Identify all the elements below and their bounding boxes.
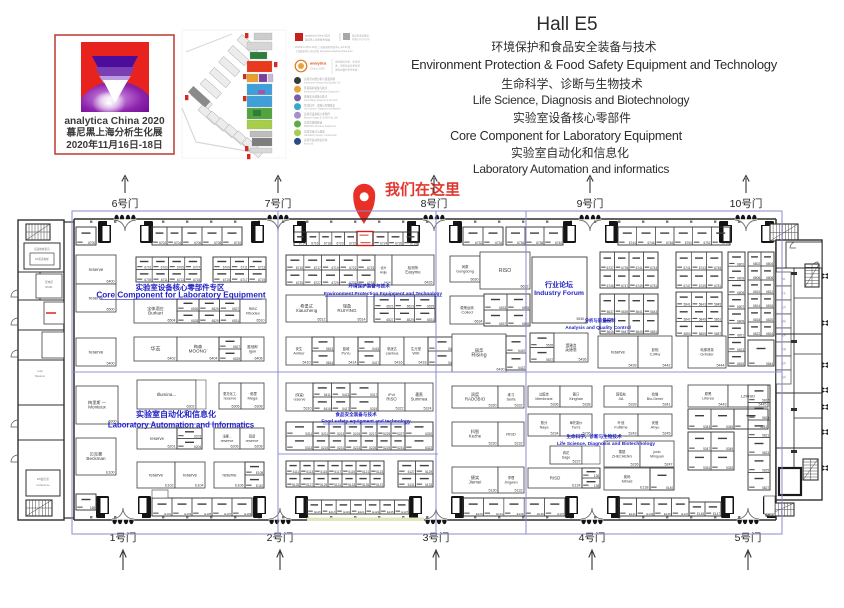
svg-text:5330: 5330 (489, 404, 497, 408)
svg-text:5310: 5310 (304, 407, 312, 411)
svg-text:Lab: Lab (37, 369, 42, 373)
svg-text:E5会议室: E5会议室 (37, 477, 49, 481)
svg-text:5127: 5127 (306, 483, 313, 487)
svg-text:6408: 6408 (255, 357, 263, 361)
svg-text:5819: 5819 (762, 416, 769, 420)
svg-text:6527: 6527 (386, 318, 393, 322)
svg-text:6749: 6749 (699, 284, 706, 288)
svg-text:E133: E133 (517, 512, 524, 516)
svg-text:侦升: 侦升 (380, 265, 386, 270)
svg-text:6749: 6749 (636, 284, 643, 288)
svg-text:Laboratory Automation and info: Laboratory Automation and informatics (473, 162, 669, 176)
svg-text:6706: 6706 (194, 241, 201, 245)
svg-text:5849: 5849 (699, 317, 706, 321)
svg-text:生元堂: 生元堂 (411, 346, 422, 351)
svg-text:Core Component for Laboratory: Core Component for Laboratory Equipment (450, 129, 683, 143)
svg-text:5137: 5137 (376, 483, 383, 487)
svg-text:6306: 6306 (232, 405, 240, 409)
svg-text:5231: 5231 (397, 446, 404, 450)
svg-text:E5-B1: E5-B1 (45, 285, 53, 289)
svg-text:Naya: Naya (540, 426, 550, 430)
svg-text:6711: 6711 (161, 278, 168, 282)
svg-text:安生: 安生 (296, 346, 303, 351)
svg-text:5855: 5855 (699, 332, 706, 336)
svg-text:生命科学、诊断与生物技术: 生命科学、诊断与生物技术 (501, 77, 643, 91)
svg-text:E127: E127 (401, 510, 408, 514)
svg-text:配电间: 配电间 (45, 280, 53, 284)
svg-text:Lianhua: Lianhua (386, 352, 399, 356)
svg-text:5247: 5247 (665, 463, 673, 467)
svg-text:5400: 5400 (107, 362, 115, 366)
svg-text:华志: 华志 (150, 346, 160, 353)
svg-text:5号门: 5号门 (735, 531, 762, 544)
svg-text:Iguk: Iguk (249, 349, 257, 354)
svg-text:6805: 6805 (737, 291, 744, 295)
svg-text:5324: 5324 (424, 407, 432, 411)
svg-text:136: 136 (594, 474, 600, 478)
svg-text:6744: 6744 (629, 241, 636, 245)
svg-text:5821: 5821 (762, 434, 769, 438)
svg-text:6748: 6748 (666, 241, 673, 245)
svg-text:4A: 4A (619, 396, 624, 401)
svg-text:RADOBIO: RADOBIO (465, 397, 486, 402)
svg-text:reserve: reserve (246, 439, 259, 443)
svg-text:MOONG': MOONG' (189, 349, 208, 354)
svg-text:E143: E143 (646, 512, 653, 516)
svg-text:2020年11月16-18日 上海新国际博览中心 E1-E7: 2020年11月16-18日 上海新国际博览中心 E1-E7馆 (295, 45, 351, 49)
svg-text:6801: 6801 (737, 262, 744, 266)
svg-text:6747: 6747 (621, 284, 628, 288)
svg-text:Auto Lab: Auto Lab (304, 143, 314, 146)
svg-text:5847: 5847 (683, 317, 690, 321)
svg-text:5132: 5132 (515, 489, 523, 493)
svg-text:Industry Forum: Industry Forum (534, 290, 584, 297)
svg-text:reserve: reserve (611, 350, 626, 355)
svg-text:6716: 6716 (311, 242, 318, 246)
svg-text:RISO: RISO (499, 268, 511, 274)
svg-text:E138: E138 (640, 486, 648, 490)
svg-text:8号门: 8号门 (421, 197, 448, 210)
svg-text:6700: 6700 (88, 241, 95, 245)
svg-text:6710: 6710 (234, 241, 241, 245)
svg-text:2号门: 2号门 (267, 531, 294, 544)
svg-text:5127: 5127 (408, 470, 415, 474)
svg-text:6320: 6320 (425, 432, 432, 436)
svg-text:E101: E101 (164, 512, 171, 516)
svg-text:5237: 5237 (573, 460, 581, 464)
svg-text:6525: 6525 (212, 307, 219, 311)
svg-text:E141: E141 (629, 512, 636, 516)
svg-text:5225: 5225 (369, 446, 376, 450)
svg-text:單托康炒: 單托康炒 (570, 420, 584, 425)
svg-text:6430: 6430 (497, 368, 505, 372)
svg-text:E131: E131 (496, 512, 503, 516)
svg-text:6812: 6812 (766, 290, 773, 294)
svg-text:6751: 6751 (714, 284, 721, 288)
svg-text:6739: 6739 (621, 266, 628, 270)
svg-text:6715: 6715 (296, 266, 303, 270)
svg-text:6634: 6634 (475, 320, 483, 324)
svg-text:E123: E123 (372, 510, 379, 514)
svg-text:Life Science, Diagnosis and Bi: Life Science, Diagnosis and Biotechnolog… (557, 441, 655, 447)
svg-text:6201: 6201 (168, 445, 176, 449)
svg-text:6402: 6402 (168, 357, 176, 361)
svg-text:环境保护和食品安全装备与技术: 环境保护和食品安全装备与技术 (491, 40, 656, 54)
svg-text:5443: 5443 (719, 403, 727, 407)
svg-text:浅果...: 浅果... (222, 433, 231, 438)
svg-text:5649: 5649 (636, 330, 643, 334)
svg-text:Minquan: Minquan (650, 455, 664, 459)
svg-text:5236: 5236 (631, 463, 639, 467)
svg-text:Environment Protection Equipme: Environment Protection Equipment and Tec… (324, 291, 443, 297)
svg-text:WIK: WIK (412, 352, 420, 356)
svg-text:6820: 6820 (766, 318, 773, 322)
svg-text:6717: 6717 (314, 266, 321, 270)
svg-text:E125: E125 (387, 510, 394, 514)
svg-text:5221: 5221 (337, 446, 344, 450)
svg-text:analytica China 2020: analytica China 2020 (64, 116, 165, 127)
svg-text:6752: 6752 (703, 241, 710, 245)
svg-text:Summea: Summea (411, 397, 428, 402)
svg-text:E104: E104 (195, 484, 203, 488)
svg-text:6529: 6529 (212, 319, 219, 323)
svg-text:5851: 5851 (714, 317, 721, 321)
svg-text:6504: 6504 (168, 319, 176, 323)
svg-text:6714: 6714 (299, 242, 306, 246)
svg-text:5125: 5125 (292, 483, 299, 487)
svg-text:5131: 5131 (334, 483, 341, 487)
svg-text:E121: E121 (358, 510, 365, 514)
svg-text:5825: 5825 (762, 469, 769, 473)
svg-text:6号门: 6号门 (112, 197, 139, 210)
svg-text:Jingwen: Jingwen (504, 481, 517, 485)
svg-text:Life Science, Diagnosis and Bi: Life Science, Diagnosis and Biotechnolog… (473, 93, 690, 107)
svg-text:6754: 6754 (722, 241, 729, 245)
svg-text:Bio-Gener: Bio-Gener (647, 397, 664, 401)
svg-text:Anjie: Anjie (380, 271, 387, 275)
svg-text:5418: 5418 (419, 361, 427, 365)
svg-text:我们在这里: 我们在这里 (385, 181, 460, 199)
svg-text:6745: 6745 (607, 284, 614, 288)
svg-text:6701: 6701 (144, 266, 151, 270)
svg-text:慕尼黑上海分析生化展: 慕尼黑上海分析生化展 (66, 127, 163, 139)
svg-text:6818: 6818 (753, 318, 760, 322)
svg-text:Beckman: Beckman (86, 456, 106, 461)
svg-text:E119: E119 (343, 510, 350, 514)
svg-text:5232: 5232 (515, 442, 523, 446)
svg-text:6722: 6722 (349, 242, 356, 246)
svg-text:Food safety equipment and tech: Food safety equipment and technology (321, 419, 411, 425)
svg-text:6709: 6709 (223, 266, 230, 270)
svg-text:10号门: 10号门 (730, 197, 763, 210)
svg-text:Rhodex: Rhodex (246, 311, 260, 316)
svg-text:6204: 6204 (194, 445, 201, 449)
svg-text:6206: 6206 (231, 445, 239, 449)
svg-text:6707: 6707 (193, 266, 200, 270)
svg-text:6322: 6322 (425, 446, 432, 450)
svg-text:分析与质量控制: 分析与质量控制 (585, 317, 616, 324)
svg-text:ZHECHENG: ZHECHENG (612, 455, 632, 459)
svg-text:Environment Protection & Food: Environment Protection & Food Safety Equ… (411, 57, 778, 72)
svg-text:reserve: reserve (223, 473, 238, 478)
svg-text:Fulltime: Fulltime (614, 426, 627, 430)
svg-text:reserve: reserve (89, 350, 104, 355)
svg-text:E5货运电梯: E5货运电梯 (35, 257, 49, 261)
svg-text:reserve: reserve (183, 473, 198, 478)
svg-text:RISD: RISD (550, 476, 561, 481)
svg-text:6824: 6824 (766, 332, 773, 336)
svg-text:6308: 6308 (255, 405, 263, 409)
svg-text:6632: 6632 (521, 285, 529, 289)
svg-text:5115: 5115 (320, 470, 327, 474)
svg-text:6715: 6715 (223, 278, 230, 282)
svg-text:5322: 5322 (396, 407, 404, 411)
svg-text:6709: 6709 (144, 278, 151, 282)
svg-text:6500: 6500 (107, 308, 115, 312)
svg-text:6523: 6523 (407, 305, 414, 309)
svg-text:Membrane: Membrane (535, 397, 552, 401)
svg-text:上海展览中心(分会场) sinoexpo.analytica: 上海展览中心(分会场) sinoexpo.analytica-china.com (295, 49, 353, 53)
svg-text:E147: E147 (713, 512, 721, 516)
svg-text:5843: 5843 (699, 303, 706, 307)
svg-text:6736: 6736 (517, 241, 524, 245)
svg-text:6708: 6708 (214, 241, 221, 245)
svg-text:9号门: 9号门 (577, 197, 604, 210)
svg-text:般分: 般分 (541, 420, 548, 425)
svg-text:5844: 5844 (766, 362, 773, 366)
svg-text:reserve: reserve (294, 398, 306, 402)
svg-text:E109: E109 (244, 512, 251, 516)
svg-text:6751: 6751 (650, 284, 657, 288)
svg-text:RISD: RISD (506, 432, 516, 437)
svg-text:5445: 5445 (759, 403, 767, 407)
svg-text:5230: 5230 (489, 442, 497, 446)
svg-text:5637: 5637 (607, 310, 614, 314)
svg-text:5113: 5113 (306, 470, 313, 474)
svg-text:实验室自动化信息化: 实验室自动化信息化 (304, 138, 328, 142)
svg-text:6732: 6732 (475, 241, 482, 245)
svg-text:边膜佳: 边膜佳 (539, 391, 549, 396)
svg-text:6721: 6721 (349, 266, 356, 270)
svg-text:6713: 6713 (177, 278, 184, 282)
svg-text:食品安全装备与技术: 食品安全装备与技术 (335, 411, 377, 418)
svg-text:5215: 5215 (353, 432, 360, 436)
svg-text:6815: 6815 (737, 362, 744, 366)
svg-text:中国国际分析、生化技: 中国国际分析、生化技 (335, 60, 361, 64)
svg-text:Biotech Usage & CHINA Vac Lab: Biotech Usage & CHINA Vac Lab (304, 116, 338, 119)
svg-text:6208: 6208 (255, 445, 263, 449)
svg-text:reserve: reserve (149, 473, 164, 478)
svg-text:5416: 5416 (395, 361, 403, 365)
svg-text:Mirrad: Mirrad (622, 480, 633, 484)
svg-text:5317: 5317 (370, 393, 377, 397)
svg-text:6528: 6528 (191, 319, 198, 323)
svg-text:6725: 6725 (296, 281, 303, 285)
svg-text:5133: 5133 (425, 483, 432, 487)
svg-text:Environment Protection Equipme: Environment Protection Equipment (304, 90, 340, 93)
svg-text:6526: 6526 (191, 307, 198, 311)
svg-text:5857: 5857 (714, 332, 721, 336)
svg-text:原黑: 原黑 (705, 391, 712, 396)
svg-text:E145: E145 (697, 512, 705, 516)
svg-text:5213: 5213 (337, 432, 344, 436)
svg-text:6719: 6719 (332, 266, 339, 270)
svg-text:Sage: Sage (562, 456, 570, 460)
svg-text:5336: 5336 (551, 403, 559, 407)
svg-text:6426: 6426 (425, 281, 433, 285)
svg-text:5444: 5444 (717, 364, 725, 368)
svg-text:5823: 5823 (762, 451, 769, 455)
svg-text:PuYu: PuYu (341, 352, 350, 356)
svg-text:5234: 5234 (551, 432, 559, 436)
svg-text:5311: 5311 (305, 432, 312, 436)
svg-text:5639: 5639 (621, 310, 628, 314)
svg-text:雪银: 雪银 (619, 449, 626, 454)
svg-text:Mega: Mega (247, 396, 258, 401)
svg-text:实验室设计与建设: 实验室设计与建设 (304, 129, 325, 133)
svg-text:E108: E108 (256, 471, 264, 475)
svg-text:6728: 6728 (410, 242, 417, 246)
svg-text:5415: 5415 (324, 407, 331, 411)
svg-text:6203: 6203 (194, 435, 201, 439)
svg-text:5817: 5817 (762, 399, 769, 403)
svg-text:食品安全装备与技术: 食品安全装备与技术 (304, 95, 328, 99)
svg-text:Jiemei: Jiemei (469, 480, 482, 485)
svg-text:更亮化工.: 更亮化工. (223, 391, 237, 396)
svg-text:6302: 6302 (187, 405, 195, 409)
svg-text:5345: 5345 (726, 425, 733, 429)
svg-text:Coiled: Coiled (461, 310, 472, 315)
svg-text:6533: 6533 (499, 306, 506, 310)
svg-text:6719: 6719 (258, 278, 265, 282)
svg-text:博雅洁: 博雅洁 (566, 342, 577, 347)
svg-text:实验室设备核心零部件: 实验室设备核心零部件 (304, 112, 330, 116)
svg-text:货运电梯机房: 货运电梯机房 (34, 247, 50, 251)
svg-text:生命科学、诊断与生物技术: 生命科学、诊断与生物技术 (304, 103, 336, 107)
svg-text:6630: 6630 (471, 278, 479, 282)
svg-text:6738: 6738 (536, 241, 543, 245)
svg-text:reserve: reserve (150, 436, 165, 441)
svg-text:6531: 6531 (232, 319, 239, 323)
svg-text:6724: 6724 (380, 242, 387, 246)
svg-text:叶冠: 叶冠 (618, 420, 625, 425)
svg-text:6804: 6804 (766, 262, 773, 266)
svg-text:RISO: RISO (386, 397, 397, 402)
svg-text:5347: 5347 (703, 447, 710, 451)
svg-text:5643: 5643 (650, 310, 657, 314)
svg-text:6713: 6713 (258, 266, 265, 270)
svg-text:5140: 5140 (666, 486, 673, 490)
svg-text:reserve: reserve (224, 397, 237, 401)
svg-text:7号门: 7号门 (265, 197, 292, 210)
svg-text:5417: 5417 (342, 407, 349, 411)
svg-text:6814: 6814 (753, 304, 760, 308)
svg-text:奥码: 奥码 (624, 474, 631, 479)
svg-text:Instrument Analysis and Qualit: Instrument Analysis and Quality Ctrl (304, 82, 341, 85)
svg-text:Ahyu: Ahyu (651, 426, 660, 430)
svg-text:6743: 6743 (650, 266, 657, 270)
svg-text:6813: 6813 (737, 348, 744, 352)
svg-text:China 2020: China 2020 (310, 67, 325, 71)
svg-text:E115: E115 (314, 510, 321, 514)
svg-text:6718: 6718 (324, 242, 331, 246)
svg-text:5123: 5123 (376, 470, 383, 474)
svg-text:6531: 6531 (427, 318, 434, 322)
svg-text:E107: E107 (224, 512, 231, 516)
svg-text:5351: 5351 (703, 466, 710, 470)
svg-text:5411: 5411 (324, 393, 331, 397)
svg-text:E147: E147 (681, 512, 688, 516)
svg-text:E129: E129 (476, 512, 483, 516)
svg-text:E110: E110 (256, 484, 263, 488)
svg-text:(保留): (保留) (295, 392, 304, 397)
svg-text:6727: 6727 (314, 281, 321, 285)
svg-text:Gongdong: Gongdong (456, 270, 474, 274)
svg-text:Serfa: Serfa (506, 398, 516, 402)
svg-text:6527: 6527 (232, 307, 239, 311)
svg-text:5319: 5319 (370, 407, 377, 411)
svg-text:5130: 5130 (489, 489, 497, 493)
svg-text:环境保护装备与技术: 环境保护装备与技术 (348, 283, 390, 290)
svg-text:E103: E103 (184, 512, 191, 516)
svg-text:5349: 5349 (726, 447, 733, 451)
svg-text:6740: 6740 (555, 241, 562, 245)
svg-text:实验室自动化和信息化: 实验室自动化和信息化 (136, 409, 216, 419)
svg-text:5245: 5245 (663, 432, 671, 436)
svg-text:6729: 6729 (332, 281, 339, 285)
svg-text:回透: 回透 (249, 433, 256, 438)
svg-text:5131: 5131 (408, 483, 415, 487)
svg-text:5827: 5827 (762, 486, 769, 490)
svg-text:6809: 6809 (737, 319, 744, 323)
svg-text:5211: 5211 (321, 432, 328, 436)
svg-text:6529: 6529 (407, 318, 414, 322)
svg-text:6808: 6808 (766, 276, 773, 280)
svg-text:6705: 6705 (177, 266, 184, 270)
svg-text:环境保护装备与技术: 环境保护装备与技术 (304, 86, 328, 90)
svg-text:术、诊断和实验室技术: 术、诊断和实验室技术 (335, 64, 361, 68)
svg-text:Grinder: Grinder (700, 352, 714, 357)
svg-text:5417: 5417 (372, 361, 379, 365)
svg-text:润原: 润原 (462, 264, 469, 269)
svg-text:5415: 5415 (372, 347, 379, 351)
svg-text:蓝城: 蓝城 (343, 346, 350, 351)
svg-text:6529: 6529 (233, 357, 240, 361)
svg-text:5217: 5217 (369, 432, 376, 436)
svg-text:5135: 5135 (362, 483, 369, 487)
svg-text:6717: 6717 (240, 278, 247, 282)
svg-text:5119: 5119 (348, 470, 355, 474)
svg-text:Reserve: Reserve (35, 374, 45, 378)
svg-text:E106: E106 (235, 484, 243, 488)
svg-text:5845: 5845 (714, 303, 721, 307)
svg-text:Tan's: Tan's (572, 426, 581, 430)
svg-text:实验室自动化和信息化: 实验室自动化和信息化 (511, 146, 629, 160)
svg-text:E100: E100 (106, 471, 114, 475)
svg-text:E102: E102 (165, 484, 173, 488)
svg-text:6512: 6512 (318, 318, 326, 322)
svg-text:有限公司 分公司: 有限公司 分公司 (352, 37, 370, 41)
svg-text:6806: 6806 (753, 276, 760, 280)
svg-text:168: 168 (90, 506, 96, 510)
svg-text:5129: 5129 (320, 483, 327, 487)
svg-text:6420: 6420 (518, 349, 525, 353)
svg-text:6745: 6745 (714, 266, 721, 270)
svg-text:6747: 6747 (683, 284, 690, 288)
svg-text:6404: 6404 (210, 357, 218, 361)
svg-text:E135: E135 (537, 512, 544, 516)
svg-text:5338: 5338 (583, 403, 591, 407)
